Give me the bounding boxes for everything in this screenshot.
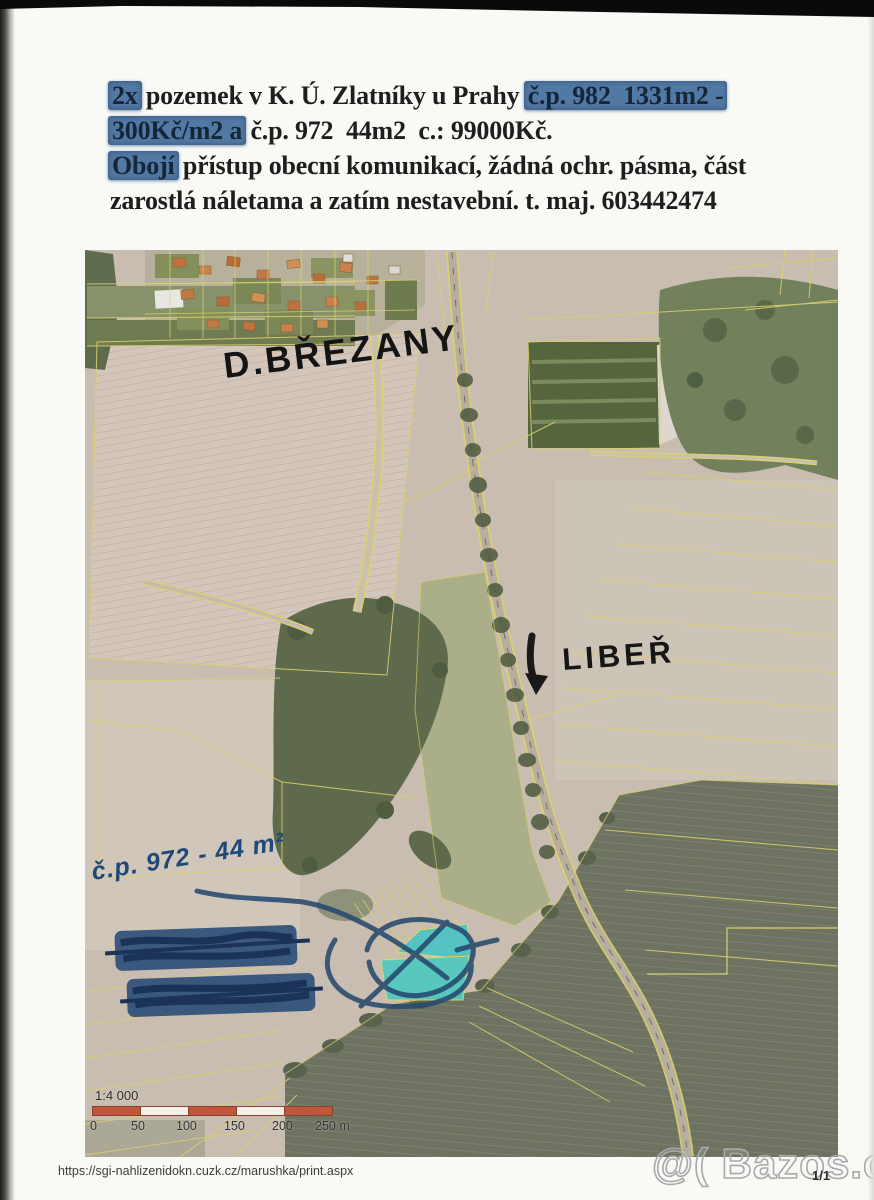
scale-segment (188, 1106, 237, 1116)
orchard-block (528, 342, 660, 448)
print-source-url: https://sgi-nahlizenidokn.cuzk.cz/marush… (58, 1164, 353, 1178)
scale-tick: 50 (131, 1119, 145, 1133)
bazos-watermark: @( Bazos.cz (650, 1138, 874, 1197)
scale-segment (284, 1106, 333, 1116)
scale-segment (140, 1106, 189, 1116)
scale-tick-labels: 0 50 100 150 200 250 m (93, 1119, 363, 1135)
scale-segment (92, 1106, 141, 1116)
scale-tick: 0 (90, 1119, 97, 1133)
page-number: 1/1 (812, 1168, 830, 1183)
pen-scribble-2 (119, 972, 323, 1017)
map-image: č.p. 972 - 44 m² D.BŘEZANY LIBEŘ (85, 250, 838, 1157)
scale-tick: 250 m (315, 1119, 350, 1133)
scale-bar-segments (93, 1106, 333, 1116)
scale-tick: 200 (272, 1119, 293, 1133)
scale-tick: 150 (224, 1119, 245, 1133)
listing-line1-main: pozemek v K. Ú. Zlatníky u Prahy (140, 81, 526, 110)
listing-line2-struck-prefix: 300Kč/m2 a (108, 116, 246, 145)
bazos-watermark-text: @( Bazos.cz (652, 1140, 874, 1187)
listing-text: 2x pozemek v K. Ú. Zlatníky u Prahy č.p.… (110, 78, 800, 218)
cadastral-map: č.p. 972 - 44 m² D.BŘEZANY LIBEŘ 1:4 000 (85, 250, 838, 1157)
listing-line4: zarostlá náletama a zatím nestavební. t.… (110, 186, 717, 215)
pen-scribble-1 (104, 924, 310, 971)
scale-tick: 100 (176, 1119, 197, 1133)
scan-edge-left (0, 0, 15, 1200)
scan-edge-right (867, 0, 874, 1200)
scale-segment (236, 1106, 285, 1116)
scanned-page: 2x pozemek v K. Ú. Zlatníky u Prahy č.p.… (0, 0, 874, 1200)
listing-line3-main: přístup obecní komunikací, žádná ochr. p… (177, 151, 747, 180)
listing-line1-struck-prefix: 2x (108, 81, 142, 110)
listing-line1-struck-suffix: č.p. 982 1331m2 - (524, 81, 728, 110)
scale-ratio: 1:4 000 (95, 1088, 363, 1103)
scale-bar: 1:4 000 0 50 100 150 200 250 m (93, 1088, 363, 1135)
listing-line3-struck-prefix: Obojí (108, 151, 179, 180)
listing-line2-main: č.p. 972 44m2 c.: 99000Kč. (244, 116, 552, 145)
